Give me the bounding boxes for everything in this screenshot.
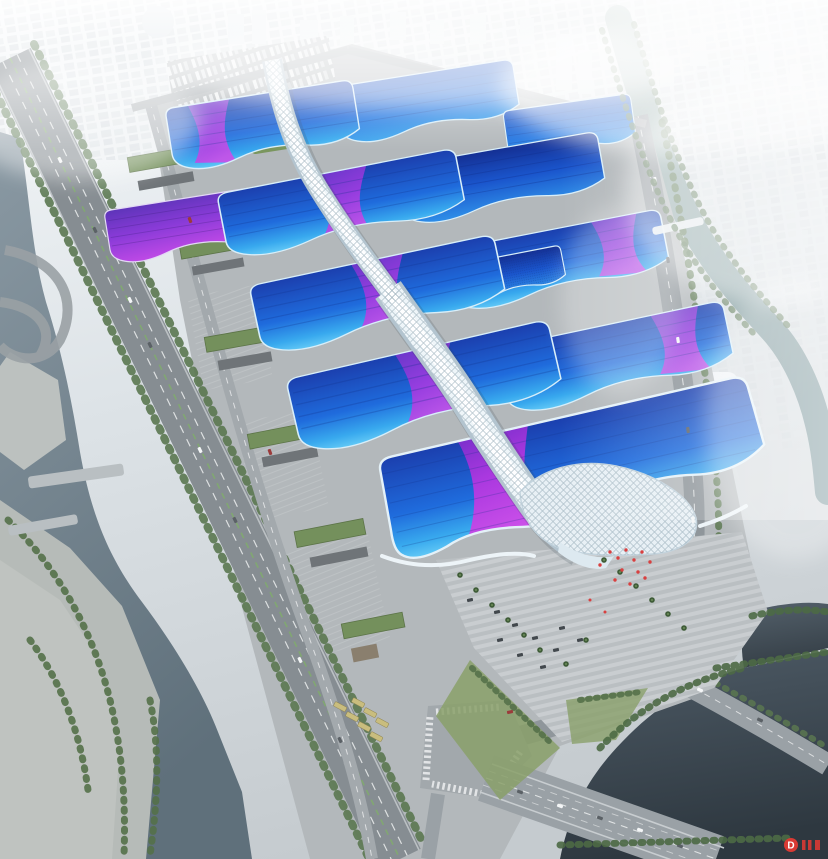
road-south-stub	[428, 794, 438, 859]
watermark-glyphs	[802, 840, 820, 850]
aerial-rendering: D	[0, 0, 828, 859]
watermark-letter: D	[787, 841, 794, 852]
